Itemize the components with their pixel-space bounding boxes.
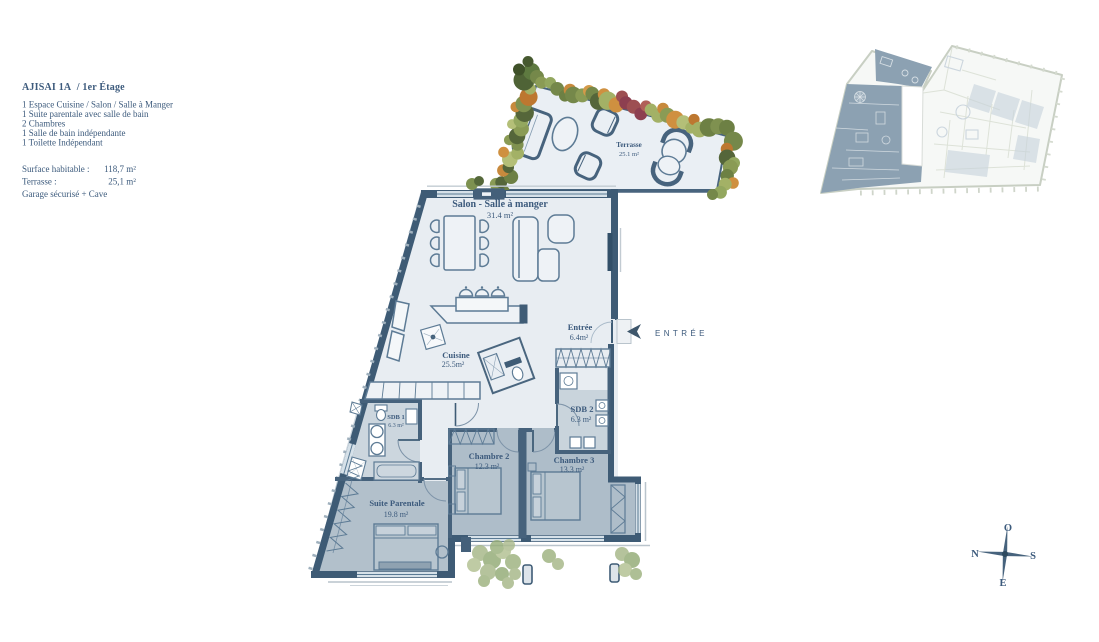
svg-text:Entrée: Entrée <box>568 322 593 332</box>
svg-text:Salon - Salle à manger: Salon - Salle à manger <box>452 199 548 210</box>
svg-text:Garage sécurisé + Cave: Garage sécurisé + Cave <box>22 189 107 199</box>
svg-text:19.8 m²: 19.8 m² <box>384 510 409 519</box>
svg-text:O: O <box>1004 523 1012 534</box>
svg-text:AJISAI 1A / 1er Étage: AJISAI 1A / 1er Étage <box>22 81 125 93</box>
svg-text:1 Salle de bain indépendante: 1 Salle de bain indépendante <box>22 128 125 138</box>
svg-text:2 Chambres: 2 Chambres <box>22 119 66 129</box>
svg-text:N: N <box>971 549 979 560</box>
svg-text:6.4m²: 6.4m² <box>570 333 589 342</box>
svg-text:25,1 m²: 25,1 m² <box>108 177 136 187</box>
svg-text:25.5m²: 25.5m² <box>442 360 465 369</box>
svg-text:Chambre 2: Chambre 2 <box>469 451 510 461</box>
svg-text:E: E <box>999 578 1006 589</box>
svg-text:118,7 m²: 118,7 m² <box>104 164 136 174</box>
svg-text:Suite Parentale: Suite Parentale <box>369 498 425 508</box>
svg-text:31.4 m²: 31.4 m² <box>487 210 514 220</box>
svg-text:Terrasse: Terrasse <box>616 141 641 149</box>
svg-text:12.3 m²: 12.3 m² <box>475 462 500 471</box>
svg-text:13.3 m²: 13.3 m² <box>560 465 585 474</box>
svg-text:ENTRÉE: ENTRÉE <box>655 329 708 338</box>
svg-text:6.3 m²: 6.3 m² <box>388 423 404 429</box>
svg-text:1 Suite parentale avec salle d: 1 Suite parentale avec salle de bain <box>22 109 149 119</box>
svg-text:1 Espace Cuisine / Salon / Sal: 1 Espace Cuisine / Salon / Salle à Mange… <box>22 100 173 110</box>
svg-text:25.1 m²: 25.1 m² <box>619 151 639 158</box>
svg-text:Surface habitable :: Surface habitable : <box>22 164 89 174</box>
svg-text:1 Toilette Indépendant: 1 Toilette Indépendant <box>22 138 103 148</box>
svg-text:Terrasse :: Terrasse : <box>22 177 57 187</box>
svg-text:SDB 2: SDB 2 <box>571 404 594 414</box>
svg-text:6.3 m²: 6.3 m² <box>571 415 592 424</box>
svg-text:S: S <box>1030 551 1036 562</box>
svg-text:Chambre 3: Chambre 3 <box>554 455 595 465</box>
svg-text:SDB 1: SDB 1 <box>387 414 405 421</box>
svg-text:Cuisine: Cuisine <box>442 350 470 360</box>
